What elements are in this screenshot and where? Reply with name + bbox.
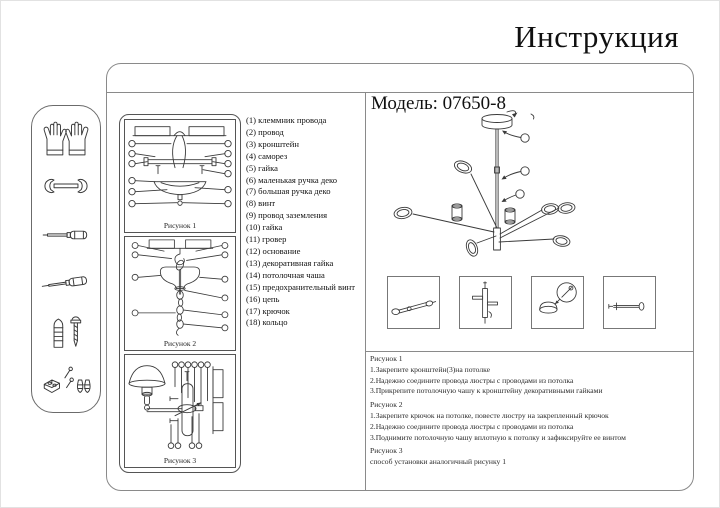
part-item: (12) основание xyxy=(246,246,365,258)
instruction-heading: Рисунок 2 xyxy=(370,400,692,411)
instruction-sheet: Инструкция xyxy=(0,0,720,508)
arm-rod-icon xyxy=(388,277,439,328)
part-item: (17) крючок xyxy=(246,306,365,318)
chandelier-callouts xyxy=(502,131,530,203)
gloves-icon xyxy=(41,119,91,157)
figure-2-diagram xyxy=(125,238,235,335)
part-item: (10) гайка xyxy=(246,222,365,234)
tool-fasteners xyxy=(40,360,92,400)
parts-list: (1) клеммник провода (2) провод (3) крон… xyxy=(246,115,365,329)
part-item: (7) большая ручка деко xyxy=(246,186,365,198)
detail-steps xyxy=(387,276,656,329)
instruction-step: 2.Надежно соедините провода люстры с про… xyxy=(370,376,692,387)
tool-wrench xyxy=(40,166,92,206)
figure-1-callouts xyxy=(129,140,231,206)
detail-box-arm-cap xyxy=(603,276,656,329)
part-item: (18) кольцо xyxy=(246,317,365,329)
figure-2-label: Рисунок 2 xyxy=(125,339,235,348)
vertical-divider xyxy=(365,92,366,490)
flat-screwdriver-icon xyxy=(41,216,91,254)
figure-1-box: Рисунок 1 xyxy=(124,119,236,233)
part-item: (3) кронштейн xyxy=(246,139,365,151)
shade-detail-icon xyxy=(532,277,583,328)
instruction-step: 3.Поднимите потолочную чашу вплотную к п… xyxy=(370,433,692,444)
main-frame: Рисунок 1 xyxy=(106,63,694,491)
lamp-shade xyxy=(557,202,575,215)
figure-2-box: Рисунок 2 xyxy=(124,236,236,350)
part-item: (11) гровер xyxy=(246,234,365,246)
tool-dowel-and-screw xyxy=(40,311,92,351)
instructions: Рисунок 1 1.Закрепите кронштейн(3)на пот… xyxy=(370,354,692,471)
wrench-icon xyxy=(41,167,91,205)
part-item: (15) предохранительный винт xyxy=(246,282,365,294)
figure-3-label: Рисунок 3 xyxy=(125,456,235,465)
instruction-block-3: Рисунок 3 способ установки аналогичный р… xyxy=(370,446,692,468)
instruction-step: способ установки аналогичный рисунку 1 xyxy=(370,457,692,468)
part-item: (5) гайка xyxy=(246,163,365,175)
instruction-step: 1.Закрепите кронштейн(3)на потолке xyxy=(370,365,692,376)
part-item: (14) потолочная чаша xyxy=(246,270,365,282)
arm-hub xyxy=(505,208,515,224)
tool-flat-screwdriver xyxy=(40,215,92,255)
figure-1-label: Рисунок 1 xyxy=(125,221,235,230)
lamp-shade xyxy=(552,234,571,247)
tools-panel xyxy=(31,105,101,413)
arm-hub xyxy=(452,204,462,221)
part-item: (2) провод xyxy=(246,127,365,139)
tool-gloves xyxy=(40,118,92,158)
part-item: (8) винт xyxy=(246,198,365,210)
instructions-divider xyxy=(365,351,693,352)
detail-box-shade-detail xyxy=(531,276,584,329)
part-item: (1) клеммник провода xyxy=(246,115,365,127)
detail-box-arm-rod xyxy=(387,276,440,329)
instruction-step: 1.Закрепите крючок на потолке, повесте л… xyxy=(370,411,692,422)
figure-1-diagram xyxy=(125,121,235,218)
instruction-heading: Рисунок 1 xyxy=(370,354,692,365)
fasteners-icon xyxy=(41,361,91,399)
instruction-step: 3.Прикрепите потолочную чашу к кронштейн… xyxy=(370,386,692,397)
detail-box-hub-assembly xyxy=(459,276,512,329)
instruction-block-1: Рисунок 1 1.Закрепите кронштейн(3)на пот… xyxy=(370,354,692,397)
lamp-shade xyxy=(464,238,480,258)
arm-cap-icon xyxy=(604,277,655,328)
instruction-heading: Рисунок 3 xyxy=(370,446,692,457)
instruction-step: 2.Надежно соедините провода люстры с про… xyxy=(370,422,692,433)
part-item: (9) провод заземления xyxy=(246,210,365,222)
part-item: (4) саморез xyxy=(246,151,365,163)
figure-3-diagram xyxy=(125,356,235,453)
chandelier-diagram xyxy=(373,110,685,272)
part-item: (13) декоративная гайка xyxy=(246,258,365,270)
lamp-shade xyxy=(453,159,474,176)
lamp-shade xyxy=(393,206,413,220)
figures-column: Рисунок 1 xyxy=(119,114,241,473)
hub-assembly-icon xyxy=(460,277,511,328)
figure-3-box: Рисунок 3 xyxy=(124,354,236,468)
dowel-and-screw-icon xyxy=(41,312,91,350)
tool-phillips-screwdriver xyxy=(40,263,92,303)
instruction-block-2: Рисунок 2 1.Закрепите крючок на потолке,… xyxy=(370,400,692,443)
phillips-screwdriver-icon xyxy=(41,264,91,302)
part-item: (6) маленькая ручка деко xyxy=(246,175,365,187)
part-item: (16) цепь xyxy=(246,294,365,306)
page-title: Инструкция xyxy=(514,19,679,55)
